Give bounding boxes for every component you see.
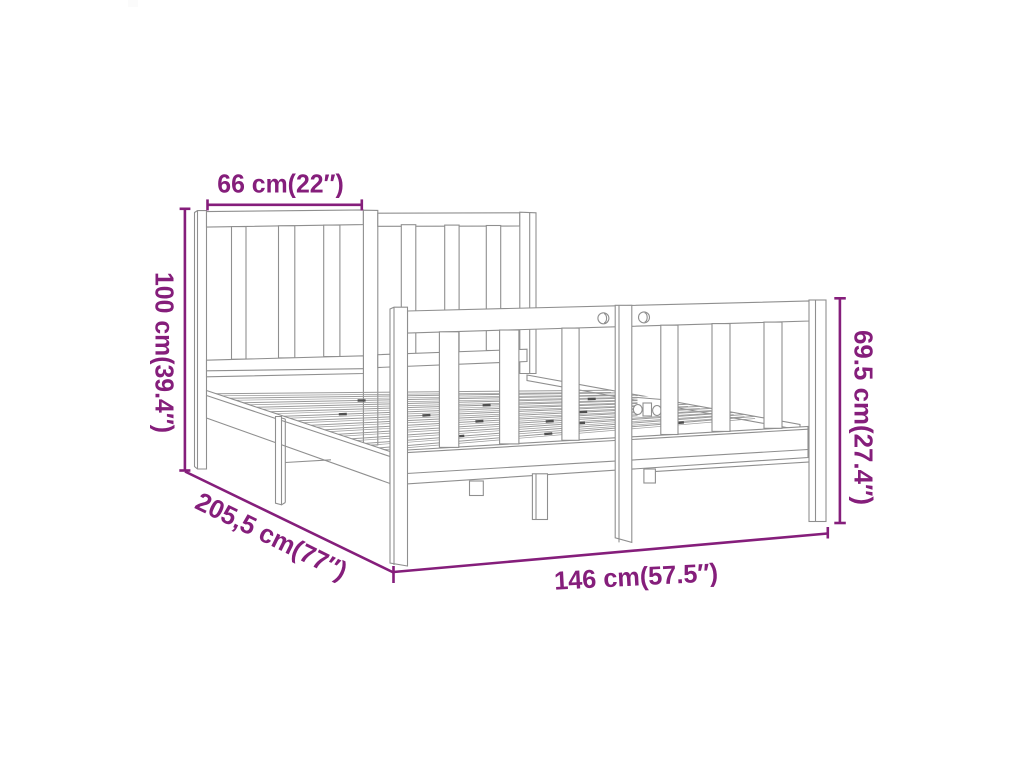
svg-text:100 cm(39.4″): 100 cm(39.4″) [149, 272, 179, 433]
svg-text:69.5 cm(27.4″): 69.5 cm(27.4″) [849, 330, 879, 505]
svg-text:66 cm(22″): 66 cm(22″) [217, 169, 344, 199]
